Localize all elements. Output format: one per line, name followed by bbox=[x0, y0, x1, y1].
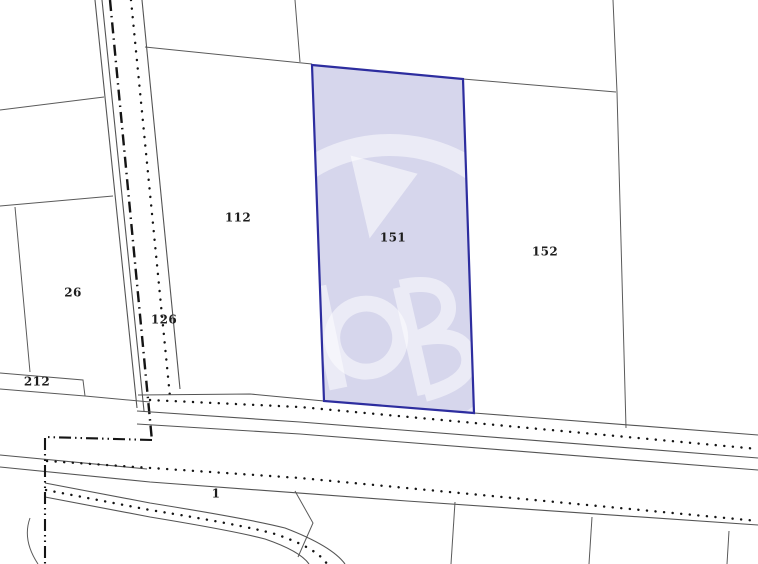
map-svg: 112 151 152 26 126 212 1 bbox=[0, 0, 758, 564]
parcel-label-151: 151 bbox=[380, 231, 406, 245]
parcel-label-212: 212 bbox=[24, 375, 50, 389]
parcel-label-126: 126 bbox=[151, 313, 177, 327]
cadastral-map-canvas[interactable]: 112 151 152 26 126 212 1 bbox=[0, 0, 758, 564]
parcel-label-112: 112 bbox=[225, 211, 251, 225]
parcel-label-152: 152 bbox=[532, 245, 558, 259]
parcel-label-1: 1 bbox=[212, 487, 221, 501]
parcel-label-26: 26 bbox=[64, 286, 82, 300]
